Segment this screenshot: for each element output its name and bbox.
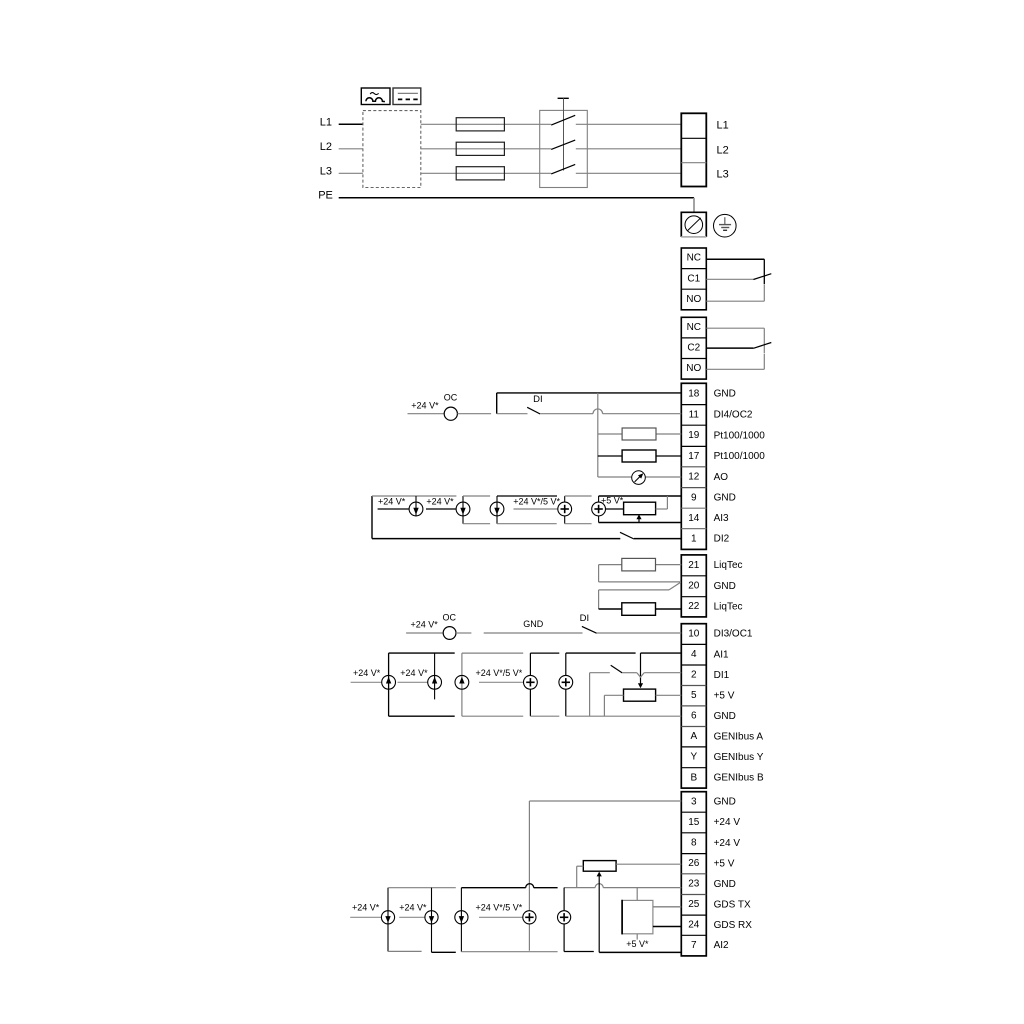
svg-text:DI3/OC1: DI3/OC1 [714,629,753,640]
svg-text:AI1: AI1 [714,649,729,660]
svg-text:NO: NO [686,363,701,374]
svg-text:AO: AO [714,472,729,483]
svg-text:12: 12 [688,472,700,483]
svg-text:+5 V: +5 V [714,690,735,701]
svg-text:6: 6 [691,711,697,722]
svg-text:GDS TX: GDS TX [714,899,751,910]
svg-text:A: A [690,731,697,742]
svg-text:PE: PE [318,190,333,202]
svg-text:+24 V*: +24 V* [353,668,381,678]
svg-text:GND: GND [714,389,736,400]
svg-text:19: 19 [688,430,700,441]
svg-text:5: 5 [691,690,697,701]
svg-text:26: 26 [688,858,700,869]
svg-text:GND: GND [523,619,544,629]
svg-text:+5 V*: +5 V* [626,939,649,949]
svg-text:1: 1 [691,533,697,544]
svg-text:+24 V: +24 V [714,817,741,828]
svg-text:21: 21 [688,560,700,571]
svg-text:C2: C2 [687,343,700,354]
svg-text:GENIbus Y: GENIbus Y [714,752,764,763]
svg-text:14: 14 [688,513,700,524]
svg-text:DI: DI [533,394,543,405]
svg-text:L3: L3 [320,165,332,177]
svg-text:2: 2 [691,670,697,681]
svg-text:10: 10 [688,628,700,639]
svg-text:AI2: AI2 [714,940,729,951]
svg-text:9: 9 [691,492,697,503]
svg-text:+5 V*: +5 V* [601,496,624,506]
svg-text:LiqTec: LiqTec [714,601,743,612]
svg-text:+24 V*: +24 V* [426,497,454,507]
svg-text:GND: GND [714,493,736,504]
svg-text:+24 V*/5 V*: +24 V*/5 V* [513,497,560,507]
svg-text:LiqTec: LiqTec [714,560,743,571]
svg-text:22: 22 [688,601,700,612]
svg-text:+24 V*/5 V*: +24 V*/5 V* [476,902,523,912]
svg-text:Pt100/1000: Pt100/1000 [714,451,766,462]
svg-text:DI1: DI1 [714,670,730,681]
svg-text:3: 3 [691,796,697,807]
svg-text:+24 V*/5 V*: +24 V*/5 V* [476,668,523,678]
svg-text:B: B [690,772,697,783]
svg-text:OC: OC [444,392,458,402]
svg-text:18: 18 [688,388,700,399]
svg-text:GND: GND [714,581,736,592]
svg-text:24: 24 [688,920,700,931]
svg-text:23: 23 [688,879,700,890]
svg-text:L2: L2 [320,141,332,153]
svg-text:+24 V*: +24 V* [399,902,427,912]
svg-text:OC: OC [443,612,457,622]
svg-text:Pt100/1000: Pt100/1000 [714,430,766,441]
svg-text:+24 V*: +24 V* [411,400,439,410]
svg-text:NC: NC [687,322,701,333]
svg-text:GENIbus B: GENIbus B [714,773,764,784]
svg-text:25: 25 [688,899,700,910]
svg-text:L1: L1 [320,117,332,129]
svg-text:7: 7 [691,940,697,951]
svg-text:L1: L1 [717,120,729,132]
svg-text:DI2: DI2 [714,534,730,545]
svg-text:DI: DI [580,613,590,624]
svg-text:+24 V*: +24 V* [352,902,380,912]
svg-text:GND: GND [714,879,736,890]
svg-text:17: 17 [688,451,700,462]
svg-text:8: 8 [691,838,697,849]
svg-text:20: 20 [688,581,700,592]
svg-text:C1: C1 [687,273,700,284]
svg-text:GDS RX: GDS RX [714,920,753,931]
svg-text:+24 V*: +24 V* [400,668,428,678]
svg-text:DI4/OC2: DI4/OC2 [714,410,753,421]
svg-text:NC: NC [687,253,701,264]
svg-text:11: 11 [689,409,700,420]
svg-text:+5 V: +5 V [714,858,735,869]
svg-text:15: 15 [688,817,700,828]
svg-text:Y: Y [690,752,697,763]
svg-text:GND: GND [714,711,736,722]
svg-text:NO: NO [686,294,701,305]
svg-text:AI3: AI3 [714,513,729,524]
svg-text:L2: L2 [717,144,729,156]
svg-text:GENIbus A: GENIbus A [714,731,764,742]
svg-text:+24 V*: +24 V* [378,497,406,507]
svg-text:+24 V*: +24 V* [411,620,439,630]
svg-text:GND: GND [714,797,736,808]
svg-text:+24 V: +24 V [714,838,741,849]
svg-text:L3: L3 [717,168,729,180]
svg-text:4: 4 [691,649,697,660]
